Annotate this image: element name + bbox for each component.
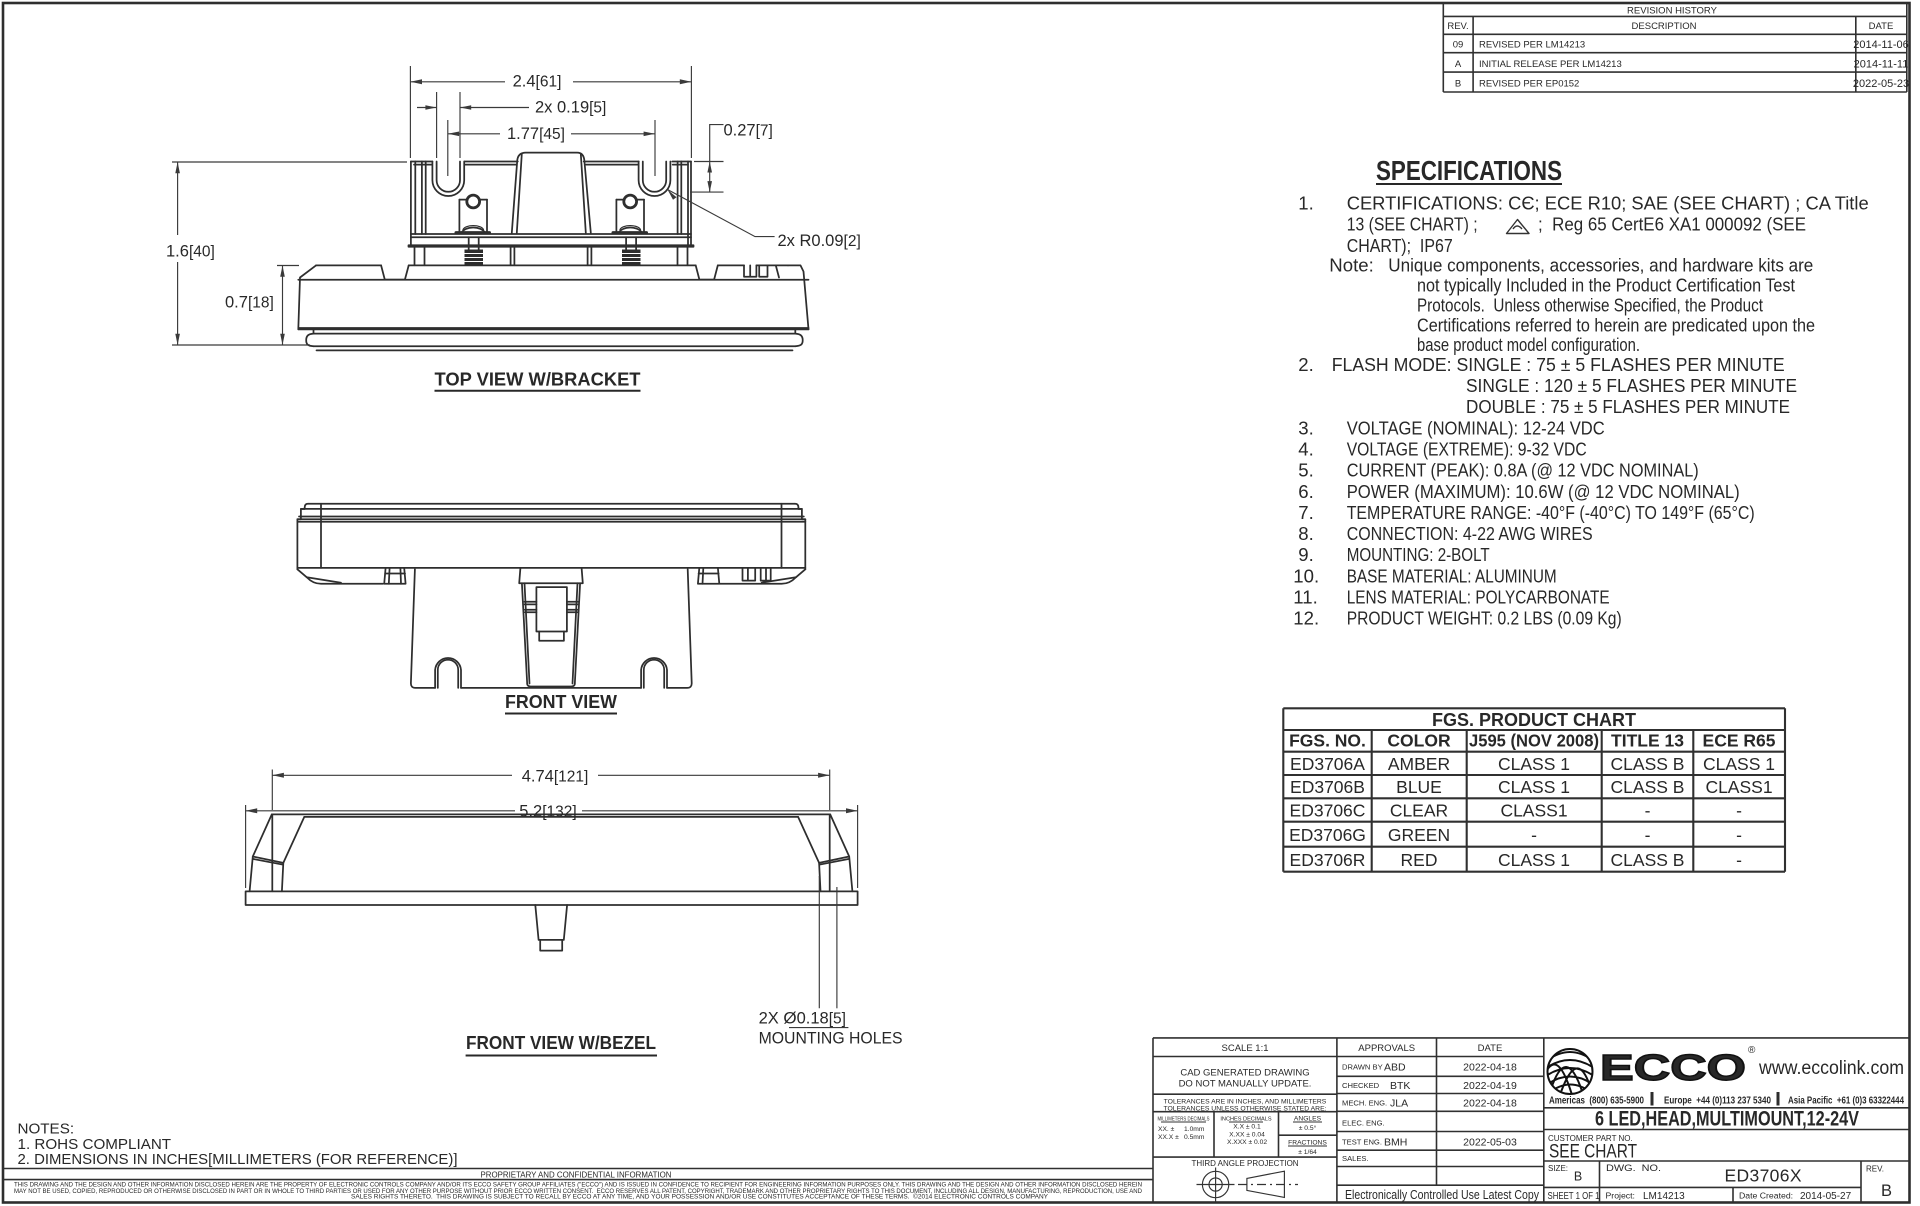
svg-text:7.: 7. [1298,502,1314,523]
svg-text:®: ® [1748,1045,1756,1056]
svg-text:LM14213: LM14213 [1643,1191,1685,1202]
svg-text:8.: 8. [1298,523,1314,544]
svg-text:SEE CHART: SEE CHART [1549,1140,1637,1162]
svg-text:FLASH MODE: SINGLE : 75 ± 5 FL: FLASH MODE: SINGLE : 75 ± 5 FLASHES PER … [1332,354,1785,375]
svg-text:2022-04-18: 2022-04-18 [1463,1098,1517,1110]
svg-text:THIRD ANGLE PROJECTION: THIRD ANGLE PROJECTION [1191,1159,1298,1168]
svg-text:SALES RIGHTS THERETO. THIS DR: SALES RIGHTS THERETO. THIS DRAWING IS SU… [351,1194,1048,1201]
svg-text:X.XX ± 0.04: X.XX ± 0.04 [1229,1131,1265,1138]
svg-text:Certifications referred to her: Certifications referred to herein are pr… [1417,315,1815,336]
svg-text:SHEET 1 OF 1: SHEET 1 OF 1 [1548,1191,1600,1202]
svg-text:GREEN: GREEN [1388,825,1450,845]
svg-text:base product model configurati: base product model configuration. [1417,334,1640,355]
svg-text:CAD GENERATED DRAWING: CAD GENERATED DRAWING [1180,1068,1309,1079]
svg-text:BMH: BMH [1384,1137,1407,1149]
svg-text:MOUNTING HOLES: MOUNTING HOLES [759,1030,903,1048]
svg-text:PRODUCT WEIGHT: 0.2 LBS (0.09: PRODUCT WEIGHT: 0.2 LBS (0.09 Kg) [1347,608,1622,629]
svg-text:2x R0.09[2]: 2x R0.09[2] [778,232,861,250]
svg-text:9.: 9. [1298,544,1314,565]
svg-text:TEST ENG.: TEST ENG. [1342,1137,1382,1146]
svg-text:REV.: REV. [1866,1165,1884,1174]
svg-text:REV.: REV. [1447,21,1468,32]
svg-text:; Reg 65 CertE6 XA1 000092 (S: ; Reg 65 CertE6 XA1 000092 (SEE [1538,214,1806,235]
svg-text:CONNECTION: 4-22 AWG WIRES: CONNECTION: 4-22 AWG WIRES [1347,523,1593,544]
svg-text:FGS. NO.: FGS. NO. [1289,731,1366,751]
svg-text:X.X ± 0.1: X.X ± 0.1 [1233,1124,1261,1131]
svg-text:Note:: Note: [1329,255,1373,276]
svg-text:0.27[7]: 0.27[7] [724,122,773,140]
svg-text:Americas (800) 635-5900: Americas (800) 635-5900 [1549,1096,1644,1107]
svg-text:ECCO: ECCO [1600,1047,1746,1088]
svg-text:ED3706G: ED3706G [1289,825,1366,845]
svg-text:CLASS 1: CLASS 1 [1498,754,1570,774]
svg-text:-: - [1531,825,1537,845]
svg-text:SCALE 1:1: SCALE 1:1 [1222,1043,1269,1054]
svg-text:MILLIMETERS DECIMALS: MILLIMETERS DECIMALS [1158,1116,1210,1122]
svg-text:1.: 1. [1298,192,1314,213]
svg-text:REVISED PER EP0152: REVISED PER EP0152 [1479,78,1579,89]
svg-text:TEMPERATURE RANGE: -40°F (-40°: TEMPERATURE RANGE: -40°F (-40°C) TO 149°… [1347,502,1755,523]
svg-text:1.0mm: 1.0mm [1184,1126,1205,1133]
svg-text:SIZE:: SIZE: [1548,1164,1568,1173]
svg-text:0.5mm: 0.5mm [1184,1134,1205,1141]
svg-text:2.: 2. [1298,354,1314,375]
svg-text:± 1/64: ± 1/64 [1298,1149,1317,1156]
svg-text:INITIAL RELEASE PER LM14213: INITIAL RELEASE PER LM14213 [1479,59,1622,70]
svg-text:FGS. PRODUCT CHART: FGS. PRODUCT CHART [1432,710,1636,730]
svg-text:RED: RED [1401,850,1438,870]
svg-text:XX. ±: XX. ± [1158,1126,1175,1133]
svg-text:4.74[121]: 4.74[121] [522,767,589,785]
svg-text:Asia Pacific +61 (0)3 6332244: Asia Pacific +61 (0)3 63322444 [1788,1096,1904,1107]
svg-text:ABD: ABD [1384,1062,1406,1074]
svg-text:CLASS1: CLASS1 [1705,777,1772,797]
svg-text:PROPRIETARY AND CONFIDENTIAL I: PROPRIETARY AND CONFIDENTIAL INFORMATION [481,1170,672,1179]
svg-text:2022-05-23: 2022-05-23 [1853,78,1909,90]
svg-text:-: - [1645,825,1651,845]
svg-text:Electronically Controlled Use: Electronically Controlled Use Latest Cop… [1345,1187,1539,1202]
svg-text:2014-11-06: 2014-11-06 [1853,39,1908,51]
svg-text:2x 0.19[5]: 2x 0.19[5] [535,99,606,117]
svg-text:MOUNTING: 2-BOLT: MOUNTING: 2-BOLT [1347,544,1490,565]
svg-text:Protocols. Unless otherwise S: Protocols. Unless otherwise Specified, t… [1417,295,1764,316]
svg-text:CHART); IP67: CHART); IP67 [1347,235,1453,256]
svg-text:SINGLE : 120 ± 5 FLASHES PER M: SINGLE : 120 ± 5 FLASHES PER MINUTE [1466,375,1797,396]
svg-text:DRAWN BY: DRAWN BY [1342,1063,1383,1072]
svg-text:CLASS B: CLASS B [1611,754,1685,774]
svg-text:DWG. NO.: DWG. NO. [1606,1163,1661,1174]
svg-text:2X Ø0.18[5]: 2X Ø0.18[5] [759,1009,846,1028]
svg-text:FRACTIONS: FRACTIONS [1288,1140,1327,1147]
svg-text:B: B [1881,1182,1892,1200]
svg-text:DO NOT MANUALLY UPDATE.: DO NOT MANUALLY UPDATE. [1179,1079,1312,1090]
svg-text:REVISION HISTORY: REVISION HISTORY [1627,6,1718,17]
svg-text:FRONT VIEW: FRONT VIEW [505,691,618,712]
svg-text:INCHES DECIMALS: INCHES DECIMALS [1220,1116,1272,1122]
svg-text:4.: 4. [1298,439,1314,460]
svg-text:B: B [1455,78,1461,89]
svg-text:Europe +44 (0)113 237 5340: Europe +44 (0)113 237 5340 [1664,1096,1771,1107]
svg-text:10.: 10. [1293,565,1319,586]
svg-text:DATE: DATE [1869,21,1894,32]
svg-text:CERTIFICATIONS: CЄ; ECE R10; S: CERTIFICATIONS: CЄ; ECE R10; SAE (SEE CH… [1347,192,1869,213]
svg-text:TOP VIEW W/BRACKET: TOP VIEW W/BRACKET [435,369,642,390]
svg-text:3.: 3. [1298,417,1314,438]
svg-text:REVISED PER LM14213: REVISED PER LM14213 [1479,40,1585,51]
svg-text:1.6[40]: 1.6[40] [166,243,215,261]
svg-text:JLA: JLA [1390,1098,1408,1110]
svg-text:2.4[61]: 2.4[61] [513,73,562,91]
svg-text:2014-05-27: 2014-05-27 [1800,1191,1852,1202]
svg-text:SPECIFICATIONS: SPECIFICATIONS [1376,155,1562,186]
svg-text:-: - [1736,825,1742,845]
svg-text:not typically Included in the: not typically Included in the Product Ce… [1417,275,1796,296]
svg-text:B: B [1574,1170,1582,1184]
svg-text:2. DIMENSIONS IN INCHES[MILLIM: 2. DIMENSIONS IN INCHES[MILLIMETERS (FOR… [18,1151,458,1168]
svg-text:CLASS1: CLASS1 [1500,801,1567,821]
svg-text:ED3706R: ED3706R [1290,850,1366,870]
svg-text:13 (SEE CHART) ;: 13 (SEE CHART) ; [1347,214,1478,235]
svg-text:2022-05-03: 2022-05-03 [1463,1137,1517,1149]
svg-text:5.2[132]: 5.2[132] [519,803,576,821]
svg-text:2022-04-18: 2022-04-18 [1463,1062,1517,1074]
svg-text:FRONT VIEW W/BEZEL: FRONT VIEW W/BEZEL [466,1032,656,1053]
svg-text:2014-11-11: 2014-11-11 [1854,58,1909,70]
svg-text:CLASS B: CLASS B [1611,777,1685,797]
svg-text:SALES.: SALES. [1342,1154,1369,1163]
svg-text:ECE R65: ECE R65 [1703,731,1776,751]
svg-text:DATE: DATE [1478,1043,1503,1054]
svg-text:XX.X ±: XX.X ± [1158,1134,1179,1141]
svg-text:TITLE 13: TITLE 13 [1611,731,1684,751]
svg-text:MECH. ENG.: MECH. ENG. [1342,1098,1387,1107]
svg-text:ED3706A: ED3706A [1290,754,1365,774]
svg-text:Project:: Project: [1606,1190,1635,1200]
svg-text:6.: 6. [1298,481,1314,502]
svg-text:CLEAR: CLEAR [1390,801,1448,821]
svg-text:TOLERANCES ARE IN INCHES, AND: TOLERANCES ARE IN INCHES, AND MILLIMETER… [1164,1099,1327,1106]
svg-text:COLOR: COLOR [1387,731,1451,751]
svg-text:CLASS 1: CLASS 1 [1703,754,1775,774]
svg-text:LENS MATERIAL: POLYCARBONATE: LENS MATERIAL: POLYCARBONATE [1347,587,1610,608]
svg-text:DOUBLE : 75 ± 5 FLASHES PER MI: DOUBLE : 75 ± 5 FLASHES PER MINUTE [1466,396,1790,417]
svg-text:ED3706B: ED3706B [1290,777,1365,797]
svg-text:CURRENT (PEAK): 0.8A (@ 12 VDC: CURRENT (PEAK): 0.8A (@ 12 VDC NOMINAL) [1347,460,1699,481]
svg-text:CLASS B: CLASS B [1611,850,1685,870]
svg-text:ELEC. ENG.: ELEC. ENG. [1342,1118,1385,1127]
svg-text:CHECKED: CHECKED [1342,1081,1380,1090]
svg-text:ED3706C: ED3706C [1290,801,1366,821]
svg-text:Unique components, accessories: Unique components, accessories, and hard… [1388,255,1813,276]
svg-text:NOTES:: NOTES: [18,1120,75,1137]
svg-text:www.eccolink.com: www.eccolink.com [1758,1057,1904,1079]
svg-text:BLUE: BLUE [1396,777,1442,797]
svg-text:6 LED,HEAD,MULTIMOUNT,12-24V: 6 LED,HEAD,MULTIMOUNT,12-24V [1595,1107,1859,1131]
svg-text:POWER (MAXIMUM): 10.6W (@ 12 V: POWER (MAXIMUM): 10.6W (@ 12 VDC NOMINAL… [1347,481,1740,502]
svg-text:TOLERANCES UNLESS OTHERWISE ST: TOLERANCES UNLESS OTHERWISE STATED ARE: [1163,1106,1326,1113]
svg-text:0.7[18]: 0.7[18] [225,293,274,311]
svg-text:CLASS 1: CLASS 1 [1498,777,1570,797]
svg-text:12.: 12. [1293,608,1319,629]
svg-text:VOLTAGE (NOMINAL): 12-24 VDC: VOLTAGE (NOMINAL): 12-24 VDC [1347,417,1605,438]
svg-text:APPROVALS: APPROVALS [1358,1043,1415,1054]
svg-text:11.: 11. [1293,587,1317,608]
svg-text:09: 09 [1453,40,1464,51]
svg-text:Date Created:: Date Created: [1739,1190,1793,1200]
svg-text:CLASS 1: CLASS 1 [1498,850,1570,870]
svg-text:± 0.5°: ± 0.5° [1299,1124,1317,1132]
svg-text:BTK: BTK [1390,1080,1410,1092]
svg-text:J595 (NOV 2008): J595 (NOV 2008) [1469,731,1599,751]
svg-text:BASE MATERIAL: ALUMINUM: BASE MATERIAL: ALUMINUM [1347,565,1557,586]
svg-text:1.77[45]: 1.77[45] [507,125,565,143]
svg-text:-: - [1645,801,1651,821]
svg-text:AMBER: AMBER [1388,754,1450,774]
svg-text:VOLTAGE (EXTREME): 9-32 VDC: VOLTAGE (EXTREME): 9-32 VDC [1347,439,1587,460]
svg-text:ANGLES: ANGLES [1294,1115,1322,1122]
svg-text:DESCRIPTION: DESCRIPTION [1632,21,1697,32]
svg-text:-: - [1736,850,1742,870]
svg-text:A: A [1455,59,1462,70]
svg-text:X.XXX ± 0.02: X.XXX ± 0.02 [1227,1139,1267,1146]
svg-text:5.: 5. [1298,460,1314,481]
svg-text:ED3706X: ED3706X [1725,1166,1802,1186]
svg-text:-: - [1736,801,1742,821]
svg-text:2022-04-19: 2022-04-19 [1463,1080,1517,1092]
